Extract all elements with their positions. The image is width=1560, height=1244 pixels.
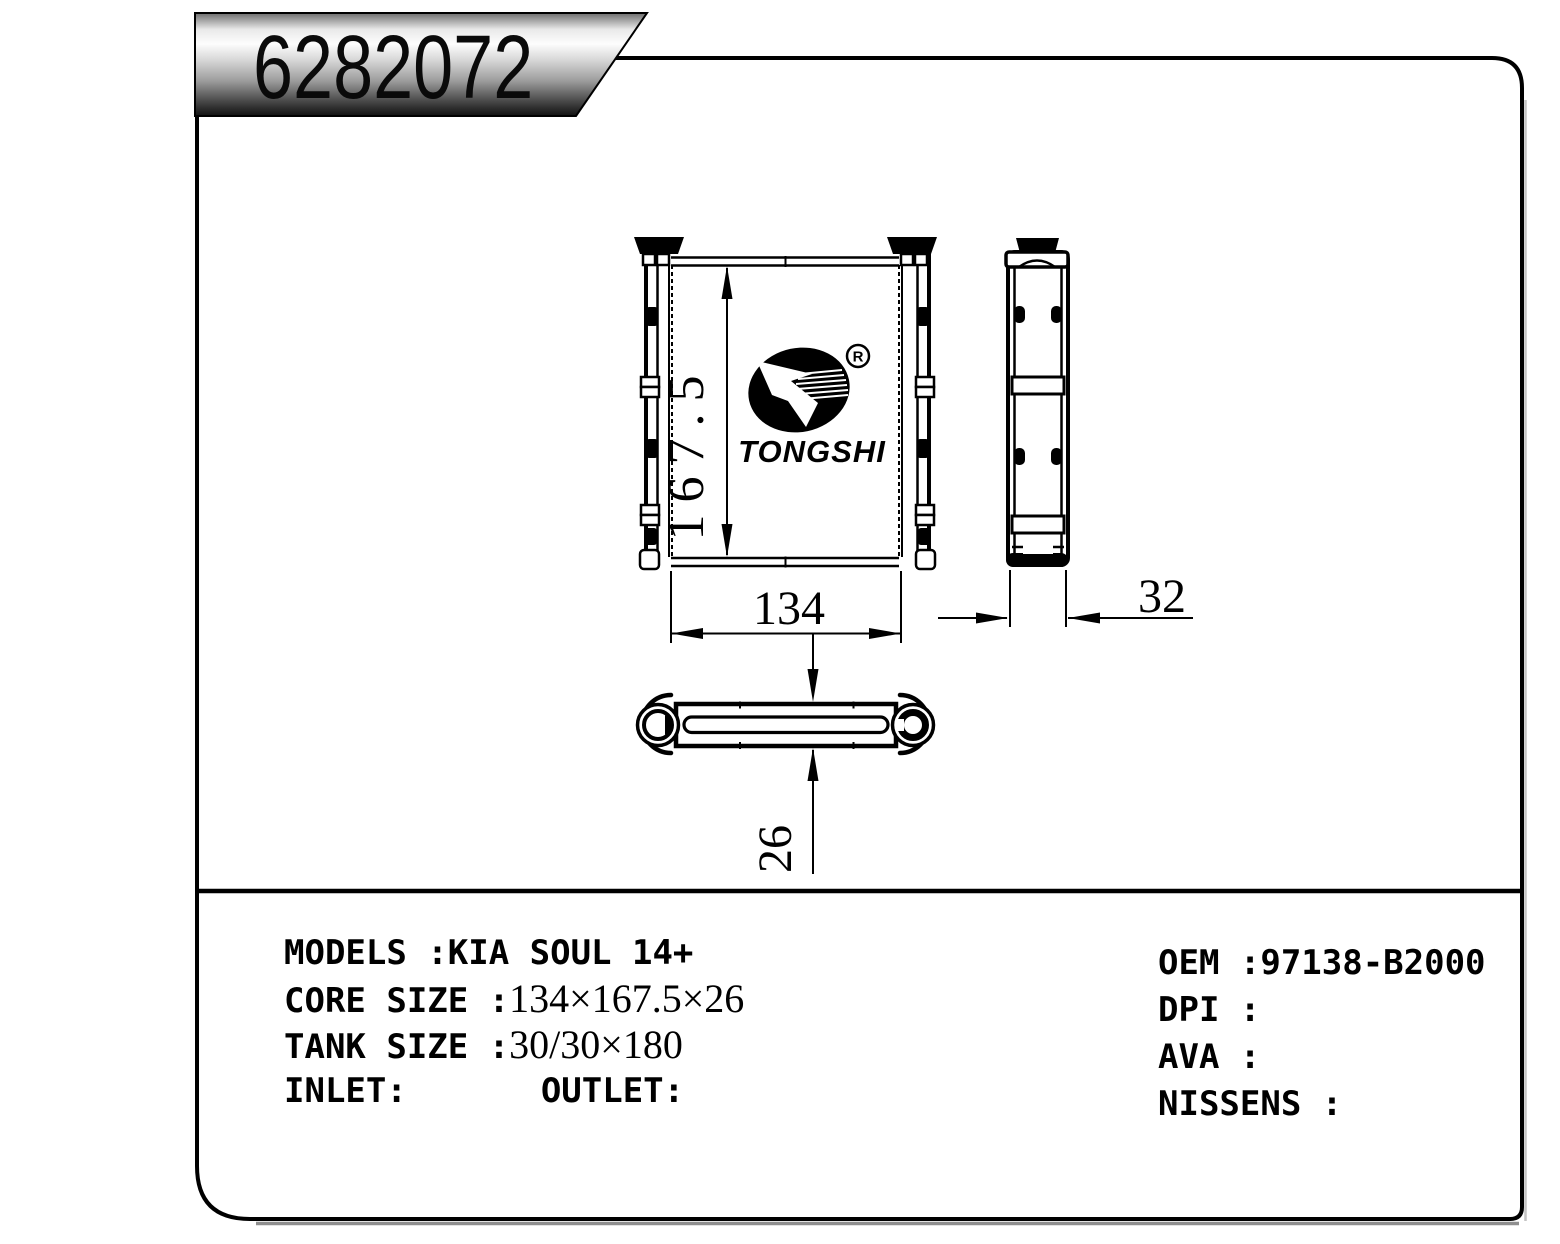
inlet-label: INLET: [284,1071,407,1111]
thickness-dimension: 26 [749,748,819,874]
spec-line-tank-size: TANK SIZE :30/30×180 [284,1022,744,1068]
depth-dimension: 32 [938,570,1193,627]
core-top-plate [671,256,899,267]
right-tank-column [899,254,935,569]
nissens-label: NISSENS : [1158,1084,1342,1124]
dpi-label: DPI : [1158,990,1260,1030]
oem-label: OEM : [1158,943,1260,983]
front-view: 167.5 134 [634,237,937,702]
width-dimension-label: 134 [753,582,825,635]
outlet-label: OUTLET: [541,1071,684,1111]
left-pipe-end [638,705,679,746]
core-bottom-plate [671,557,899,568]
tank-size-value: 30/30×180 [509,1022,683,1067]
part-number-banner: 6282072 [195,13,647,118]
core-size-label: CORE SIZE : [284,981,509,1021]
depth-dimension-label: 32 [1138,570,1186,623]
spec-line-nissens: NISSENS : [1158,1081,1486,1128]
spec-line-core-size: CORE SIZE :134×167.5×26 [284,976,744,1022]
spec-line-oem: OEM :97138-B2000 [1158,940,1486,987]
tank-size-label: TANK SIZE : [284,1027,509,1067]
models-value: KIA SOUL 14+ [448,933,694,973]
registered-mark-letter: R [853,349,864,366]
part-number: 6282072 [253,17,533,117]
side-pipe-cap [1006,238,1068,267]
spec-line-inlet-outlet: INLET:OUTLET: [284,1068,744,1114]
left-pipe-cap [634,237,684,265]
logo-wordmark: TONGSHI [738,434,886,469]
technical-drawing-page: 167.5 134 [0,0,1560,1244]
tongshi-logo: R TONGSHI [738,338,886,469]
side-view: 32 [938,238,1193,627]
spec-line-ava: AVA : [1158,1034,1486,1081]
ava-label: AVA : [1158,1037,1260,1077]
top-view: 26 [638,695,934,874]
spec-line-dpi: DPI : [1158,987,1486,1034]
right-pipe-end [893,705,934,746]
height-dimension-label: 167.5 [658,364,715,541]
core-size-value: 134×167.5×26 [509,976,744,1021]
spec-block-right: OEM :97138-B2000 DPI : AVA : NISSENS : [1158,940,1486,1128]
spec-line-models: MODELS :KIA SOUL 14+ [284,930,744,976]
spec-block-left: MODELS :KIA SOUL 14+ CORE SIZE :134×167.… [284,930,744,1114]
oem-value: 97138-B2000 [1260,943,1485,983]
models-label: MODELS : [284,933,448,973]
thickness-dimension-label: 26 [749,825,802,873]
width-dimension: 134 [671,571,901,702]
